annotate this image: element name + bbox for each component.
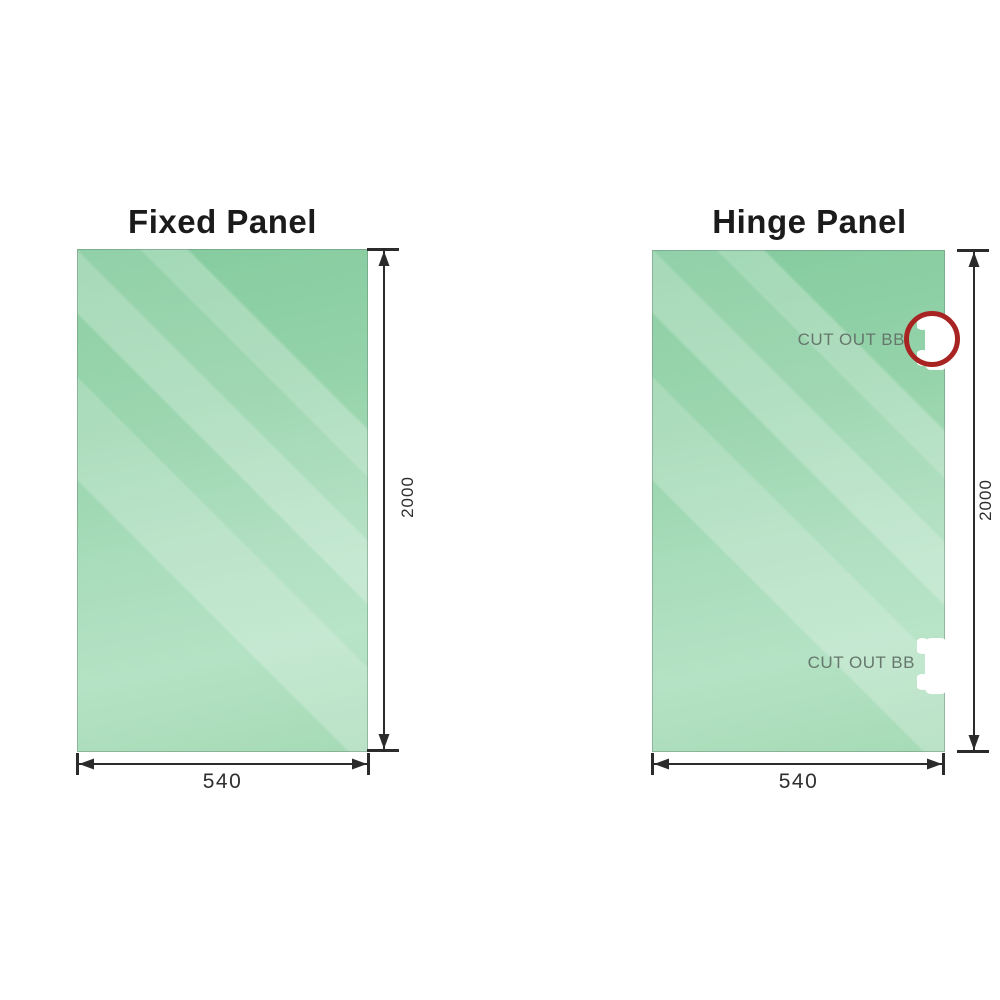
fixed-panel-title: Fixed Panel bbox=[77, 203, 368, 241]
cutout-highlight-ring bbox=[904, 311, 960, 367]
fixed-glass-panel bbox=[77, 249, 368, 752]
fixed-height-dimension-label: 2000 bbox=[398, 467, 418, 527]
hinge-panel-title: Hinge Panel bbox=[662, 203, 957, 241]
hinge-width-dimension-label: 540 bbox=[652, 770, 945, 794]
fixed-width-dimension-label: 540 bbox=[77, 770, 368, 794]
hinge-height-dimension-label: 2000 bbox=[976, 470, 996, 530]
hinge-cutout-bottom-label: CUT OUT BB bbox=[765, 653, 915, 673]
diagram-canvas: Fixed Panel 2000 540 Hinge Panel CUT OUT… bbox=[0, 0, 1000, 1000]
hinge-cutout-top-label: CUT OUT BB bbox=[755, 330, 905, 350]
hinge-glass-panel bbox=[652, 250, 945, 752]
hinge-cutout-bottom-notch bbox=[917, 635, 947, 695]
fixed-height-dimension-line bbox=[366, 247, 402, 753]
